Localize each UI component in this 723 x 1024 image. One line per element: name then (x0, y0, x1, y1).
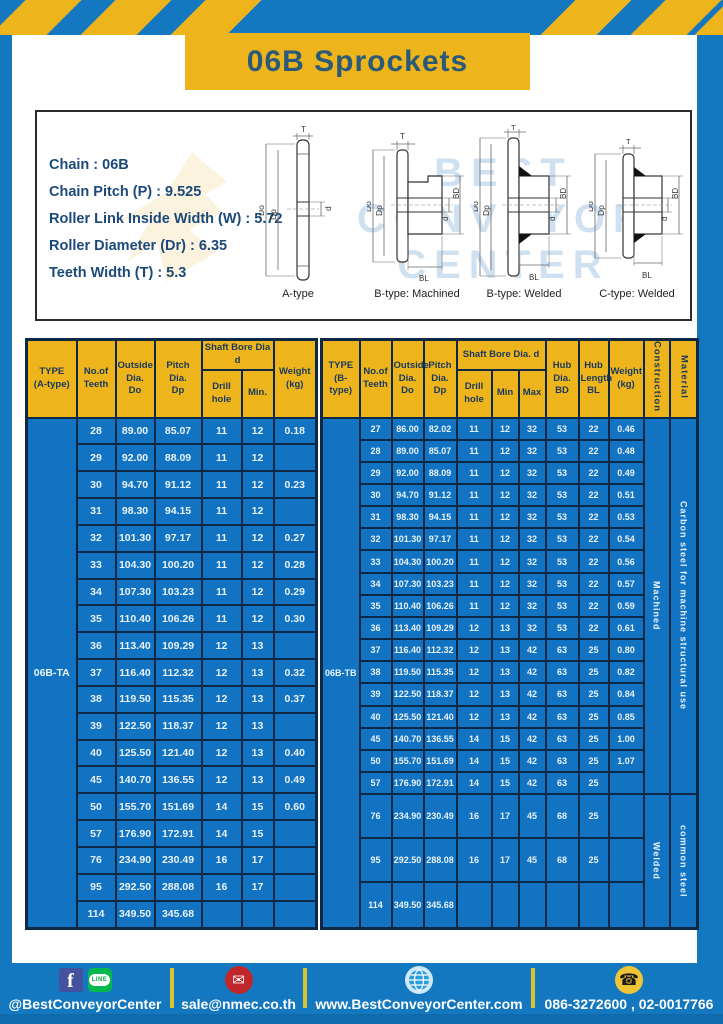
table-cell: 16 (457, 838, 492, 882)
table-cell: 32 (519, 440, 546, 462)
table-cell: 12 (492, 573, 519, 595)
table-cell: 42 (519, 750, 546, 772)
table-cell: 68 (546, 794, 579, 838)
table-cell: 25 (579, 728, 609, 750)
table-row: 76234.90230.491617456825Weldedcommon ste… (322, 794, 698, 838)
table-row: 40125.50121.4012134263250.85 (322, 706, 698, 728)
table-cell: 25 (579, 661, 609, 683)
table-cell: 89.00 (392, 440, 424, 462)
table-cell: 12 (202, 740, 242, 767)
spec-line: Roller Link Inside Width (W) : 5.72 (49, 206, 283, 233)
table-cell: 234.90 (116, 847, 155, 874)
table-row: 2889.0085.0711123253220.48 (322, 440, 698, 462)
table-row: 33104.30100.2011123253220.56 (322, 550, 698, 572)
col-header-material: Material (670, 340, 698, 418)
col-header-weight: Weight (kg) (274, 340, 317, 418)
table-cell: 25 (579, 772, 609, 794)
table-cell (274, 498, 317, 525)
svg-text:BD: BD (671, 188, 680, 199)
globe-icon[interactable] (405, 966, 433, 994)
svg-text:T: T (301, 125, 306, 134)
table-cell: 12 (242, 605, 274, 632)
table-cell (609, 838, 644, 882)
svg-text:Dp: Dp (596, 205, 606, 216)
spec-line: Chain Pitch (P) : 9.525 (49, 179, 283, 206)
table-cell: 114 (77, 901, 116, 929)
footer-social[interactable]: f LINE @BestConveyorCenter (0, 963, 170, 1014)
col-header-teeth: No.of Teeth (360, 340, 392, 418)
table-cell: 57 (77, 820, 116, 847)
table-row: 2992.0088.0911123253220.49 (322, 462, 698, 484)
table-cell: 53 (546, 462, 579, 484)
table-cell: 122.50 (392, 683, 424, 705)
table-cell: 28 (360, 440, 392, 462)
table-cell: 40 (360, 706, 392, 728)
table-cell: 176.90 (392, 772, 424, 794)
footer-website[interactable]: www.BestConveyorCenter.com (307, 963, 531, 1014)
table-cell: 57 (360, 772, 392, 794)
table-cell: 13 (492, 661, 519, 683)
top-decorative-bar (0, 0, 723, 35)
table-cell: 12 (242, 418, 274, 445)
table-cell: 115.35 (424, 661, 457, 683)
table-cell: 28 (77, 418, 116, 445)
table-cell: 11 (457, 573, 492, 595)
table-cell: 125.50 (392, 706, 424, 728)
construction-cell: Machined (644, 418, 670, 795)
table-cell: 11 (202, 418, 242, 445)
table-cell: 118.37 (424, 683, 457, 705)
table-cell: 292.50 (392, 838, 424, 882)
table-cell: 37 (360, 639, 392, 661)
table-cell: 151.69 (424, 750, 457, 772)
table-cell: 100.20 (155, 552, 202, 579)
table-cell: 32 (519, 550, 546, 572)
table-cell: 11 (457, 418, 492, 440)
table-cell: 155.70 (116, 793, 155, 820)
table-cell: 0.46 (609, 418, 644, 440)
line-icon[interactable]: LINE (88, 968, 112, 992)
table-cell: 63 (546, 772, 579, 794)
table-cell: 288.08 (155, 874, 202, 901)
table-cell: 101.30 (392, 528, 424, 550)
table-cell: 0.29 (274, 579, 317, 606)
facebook-icon[interactable]: f (59, 968, 83, 992)
table-cell: 42 (519, 728, 546, 750)
table-cell: 14 (202, 820, 242, 847)
table-cell: 22 (579, 506, 609, 528)
table-cell: 88.09 (155, 444, 202, 471)
table-cell: 11 (202, 471, 242, 498)
table-cell: 22 (579, 528, 609, 550)
table-cell: 31 (360, 506, 392, 528)
svg-text:BL: BL (642, 271, 652, 280)
table-row: 06B-TA2889.0085.0711120.18 (27, 418, 317, 445)
table-cell: 45 (77, 766, 116, 793)
col-header-min: Min (492, 370, 519, 418)
table-06b-tb: TYPE (B-type) No.of Teeth Outside Dia. D… (320, 338, 699, 930)
table-cell: 12 (242, 525, 274, 552)
table-cell (242, 901, 274, 929)
table-cell: 53 (546, 440, 579, 462)
table-cell: 22 (579, 617, 609, 639)
table-cell: 155.70 (392, 750, 424, 772)
table-cell: 12 (492, 550, 519, 572)
table-cell: 32 (77, 525, 116, 552)
table-cell: 0.85 (609, 706, 644, 728)
table-cell: 0.82 (609, 661, 644, 683)
table-cell: 63 (546, 728, 579, 750)
col-header-drill: Drill hole (202, 370, 242, 418)
col-header-shaft-bore: Shaft Bore Dia d (202, 340, 274, 370)
table-cell: 140.70 (392, 728, 424, 750)
table-cell: 33 (360, 550, 392, 572)
table-cell: 104.30 (116, 552, 155, 579)
table-cell: 12 (457, 617, 492, 639)
phone-numbers[interactable]: 086-3272600 , 02-0017766 (545, 996, 714, 1012)
table-cell: 106.26 (424, 595, 457, 617)
svg-text:Dp: Dp (268, 209, 278, 220)
table-cell: 116.40 (116, 659, 155, 686)
table-cell: 32 (519, 528, 546, 550)
mail-icon[interactable]: ✉ (225, 966, 253, 994)
website-url[interactable]: www.BestConveyorCenter.com (315, 996, 522, 1012)
col-header-drill: Drill hole (457, 370, 492, 418)
table-cell: 12 (202, 713, 242, 740)
table-cell: 25 (579, 706, 609, 728)
table-cell: 32 (519, 506, 546, 528)
table-cell: 27 (360, 418, 392, 440)
table-cell: 82.02 (424, 418, 457, 440)
table-cell: 13 (242, 740, 274, 767)
table-cell: 345.68 (155, 901, 202, 929)
phone-icon[interactable]: ☎ (615, 966, 643, 994)
table-cell: 172.91 (155, 820, 202, 847)
table-cell: 12 (457, 706, 492, 728)
stripe (81, 0, 172, 35)
table-cell: 97.17 (155, 525, 202, 552)
svg-text:BL: BL (419, 274, 429, 283)
diagram-panel: BEST CONVEYOR CENTER Chain : 06B Chain P… (35, 110, 692, 321)
table-cell: 13 (242, 766, 274, 793)
table-cell: 32 (360, 528, 392, 550)
material-cell: common steel (670, 794, 698, 928)
col-header-teeth: No.of Teeth (77, 340, 116, 418)
table-cell: 50 (360, 750, 392, 772)
svg-text:Do: Do (589, 201, 595, 212)
table-cell (546, 882, 579, 928)
table-cell: 103.23 (155, 579, 202, 606)
table-cell: 53 (546, 573, 579, 595)
table-cell: 12 (492, 528, 519, 550)
table-cell: 42 (519, 661, 546, 683)
table-row: 32101.3097.1711123253220.54 (322, 528, 698, 550)
table-cell: 109.29 (155, 632, 202, 659)
email-address[interactable]: sale@nmec.co.th (181, 996, 296, 1012)
table-cell: 1.00 (609, 728, 644, 750)
table-cell (274, 847, 317, 874)
table-cell: 109.29 (424, 617, 457, 639)
table-cell: 0.84 (609, 683, 644, 705)
table-cell: 0.59 (609, 595, 644, 617)
table-cell: 32 (519, 484, 546, 506)
table-cell: 0.51 (609, 484, 644, 506)
table-cell: 11 (457, 595, 492, 617)
table-row: 3198.3094.1511123253220.53 (322, 506, 698, 528)
table-cell: 12 (492, 506, 519, 528)
table-cell: 17 (242, 874, 274, 901)
diagram-caption: B-type: Welded (474, 288, 574, 300)
table-cell: 11 (202, 579, 242, 606)
stripe (0, 0, 82, 35)
svg-text:d: d (548, 217, 557, 221)
table-cell: 15 (242, 820, 274, 847)
table-cell: 0.28 (274, 552, 317, 579)
table-cell: 94.70 (392, 484, 424, 506)
table-cell: 114 (360, 882, 392, 928)
col-header-max: Max (519, 370, 546, 418)
table-cell: 14 (457, 750, 492, 772)
table-cell: 39 (360, 683, 392, 705)
table-cell: 14 (202, 793, 242, 820)
table-cell: 12 (202, 766, 242, 793)
table-cell: 110.40 (392, 595, 424, 617)
table-cell: 0.27 (274, 525, 317, 552)
table-cell: 13 (242, 713, 274, 740)
table-cell: 22 (579, 462, 609, 484)
col-header-pitch: Pitch Dia. Dp (424, 340, 457, 418)
table-cell: 0.49 (274, 766, 317, 793)
table-cell: 95 (360, 838, 392, 882)
table-cell: 0.40 (274, 740, 317, 767)
table-cell: 22 (579, 484, 609, 506)
table-row: 35110.40106.2611123253220.59 (322, 595, 698, 617)
table-cell: 11 (202, 498, 242, 525)
table-cell: 94.70 (116, 471, 155, 498)
table-cell: 22 (579, 418, 609, 440)
table-cell: 15 (492, 772, 519, 794)
table-cell: 32 (519, 462, 546, 484)
table-cell: 11 (457, 550, 492, 572)
table-cell: 0.56 (609, 550, 644, 572)
table-cell: 14 (457, 728, 492, 750)
table-row: 38119.50115.3512134263250.82 (322, 661, 698, 683)
page-title: 06B Sprockets (247, 45, 468, 79)
col-header-outside: Outside Dia. Do (392, 340, 424, 418)
table-cell: 13 (242, 632, 274, 659)
table-cell: 0.54 (609, 528, 644, 550)
table-row: 06B-TB2786.0082.0211123253220.46Machined… (322, 418, 698, 440)
table-cell: 11 (457, 506, 492, 528)
table-cell: 12 (457, 683, 492, 705)
table-cell: 176.90 (116, 820, 155, 847)
table-cell: 101.30 (116, 525, 155, 552)
table-cell: 29 (77, 444, 116, 471)
table-cell: 63 (546, 706, 579, 728)
table-cell: 0.48 (609, 440, 644, 462)
diagram-caption: B-type: Machined (367, 288, 467, 300)
spec-line: Chain : 06B (49, 152, 283, 179)
table-cell: 37 (77, 659, 116, 686)
footer-email[interactable]: ✉ sale@nmec.co.th (174, 963, 303, 1014)
table-cell: 94.15 (155, 498, 202, 525)
material-cell: Carbon steel for machine structural use (670, 418, 698, 795)
table-cell (609, 882, 644, 928)
table-cell: 234.90 (392, 794, 424, 838)
table-cell: 112.32 (424, 639, 457, 661)
table-cell: 35 (77, 605, 116, 632)
table-cell: 288.08 (424, 838, 457, 882)
type-cell: 06B-TA (27, 418, 77, 929)
table-cell: 0.80 (609, 639, 644, 661)
diagram-caption: C-type: Welded (589, 288, 685, 300)
table-cell: 0.53 (609, 506, 644, 528)
table-cell: 119.50 (116, 686, 155, 713)
table-cell: 40 (77, 740, 116, 767)
table-row: 3094.7091.1211123253220.51 (322, 484, 698, 506)
table-cell: 118.37 (155, 713, 202, 740)
svg-text:d: d (660, 217, 669, 221)
table-cell: 32 (519, 595, 546, 617)
col-header-type: TYPE (A-type) (27, 340, 77, 418)
table-cell: 68 (546, 838, 579, 882)
bottom-strip (0, 1014, 723, 1024)
table-cell: 13 (492, 617, 519, 639)
table-cell: 13 (492, 683, 519, 705)
table-cell: 230.49 (424, 794, 457, 838)
table-cell: 42 (519, 639, 546, 661)
diagram-caption: A-type (259, 288, 337, 300)
table-06b-ta: TYPE (A-type) No.of Teeth Outside Dia. D… (25, 338, 318, 930)
table-cell: 122.50 (116, 713, 155, 740)
table-cell: 89.00 (116, 418, 155, 445)
chain-specs: Chain : 06B Chain Pitch (P) : 9.525 Roll… (49, 152, 283, 287)
table-cell: 11 (457, 462, 492, 484)
table-cell: 345.68 (424, 882, 457, 928)
table-cell: 12 (492, 595, 519, 617)
svg-text:Do: Do (474, 201, 480, 212)
table-cell: 113.40 (392, 617, 424, 639)
table-cell (457, 882, 492, 928)
table-cell: 140.70 (116, 766, 155, 793)
table-cell: 63 (546, 661, 579, 683)
construction-cell: Welded (644, 794, 670, 928)
table-cell: 53 (546, 506, 579, 528)
table-cell: 50 (77, 793, 116, 820)
svg-text:BL: BL (529, 273, 539, 282)
col-header-shaft-bore: Shaft Bore Dia. d (457, 340, 546, 370)
table-cell: 85.07 (155, 418, 202, 445)
table-cell: 172.91 (424, 772, 457, 794)
table-cell: 12 (492, 418, 519, 440)
spec-line: Roller Diameter (Dr) : 6.35 (49, 233, 283, 260)
table-cell: 106.26 (155, 605, 202, 632)
table-cell: 13 (242, 659, 274, 686)
table-cell: 121.40 (424, 706, 457, 728)
table-cell: 0.57 (609, 573, 644, 595)
sprocket-diagram-c-welded: T Do Dp d BD (589, 124, 685, 293)
table-cell: 13 (242, 686, 274, 713)
table-cell: 11 (457, 528, 492, 550)
catalog-page: 06B Sprockets BEST CONVEYOR CENTER Chain… (0, 0, 723, 1024)
table-cell (274, 632, 317, 659)
svg-text:Dp: Dp (374, 205, 384, 216)
table-cell: 38 (77, 686, 116, 713)
sprocket-diagram-b-welded: T Do Dp d BD (474, 124, 574, 293)
table-cell: 12 (242, 444, 274, 471)
table-cell: 38 (360, 661, 392, 683)
footer: f LINE @BestConveyorCenter ✉ sale@nmec.c… (0, 963, 723, 1014)
table-cell: 136.55 (155, 766, 202, 793)
social-handle[interactable]: @BestConveyorCenter (9, 996, 162, 1012)
table-cell: 95 (77, 874, 116, 901)
table-cell: 42 (519, 706, 546, 728)
table-cell: 53 (546, 595, 579, 617)
table-cell: 53 (546, 484, 579, 506)
table-a-container: TYPE (A-type) No.of Teeth Outside Dia. D… (25, 338, 318, 930)
table-cell: 25 (579, 838, 609, 882)
table-cell: 16 (202, 874, 242, 901)
col-header-min: Min. (242, 370, 274, 418)
svg-text:BD: BD (452, 188, 461, 199)
table-cell: 34 (360, 573, 392, 595)
table-cell: 53 (546, 617, 579, 639)
stripe (171, 0, 262, 35)
col-header-construction: Construction (644, 340, 670, 418)
svg-text:T: T (400, 132, 405, 141)
table-cell: 0.23 (274, 471, 317, 498)
table-cell: 30 (360, 484, 392, 506)
table-cell: 15 (492, 728, 519, 750)
table-cell: 98.30 (392, 506, 424, 528)
table-cell: 12 (242, 498, 274, 525)
col-header-hub-length: Hub Length BL (579, 340, 609, 418)
table-cell: 11 (202, 605, 242, 632)
table-row: 45140.70136.5514154263251.00 (322, 728, 698, 750)
table-cell: 45 (360, 728, 392, 750)
table-cell: 98.30 (116, 498, 155, 525)
table-cell: 53 (546, 418, 579, 440)
table-cell: 94.15 (424, 506, 457, 528)
table-cell: 100.20 (424, 550, 457, 572)
table-cell: 1.07 (609, 750, 644, 772)
table-cell: 125.50 (116, 740, 155, 767)
table-cell: 30 (77, 471, 116, 498)
table-cell: 32 (519, 418, 546, 440)
table-cell (274, 820, 317, 847)
table-cell: 104.30 (392, 550, 424, 572)
table-cell: 113.40 (116, 632, 155, 659)
table-cell: 12 (202, 632, 242, 659)
table-cell: 22 (579, 573, 609, 595)
svg-text:d: d (323, 206, 333, 211)
table-cell (609, 794, 644, 838)
svg-text:T: T (511, 124, 516, 132)
svg-text:d: d (441, 217, 450, 221)
table-row: 95292.50288.081617456825 (322, 838, 698, 882)
table-cell: 107.30 (392, 573, 424, 595)
table-cell: 35 (360, 595, 392, 617)
table-cell: 12 (242, 471, 274, 498)
table-cell: 13 (492, 639, 519, 661)
svg-text:Dp: Dp (481, 205, 491, 216)
table-cell: 12 (242, 552, 274, 579)
table-cell: 17 (492, 794, 519, 838)
table-cell (274, 713, 317, 740)
table-b-container: TYPE (B-type) No.of Teeth Outside Dia. D… (320, 338, 699, 930)
table-cell: 36 (77, 632, 116, 659)
footer-phone[interactable]: ☎ 086-3272600 , 02-0017766 (535, 963, 723, 1014)
